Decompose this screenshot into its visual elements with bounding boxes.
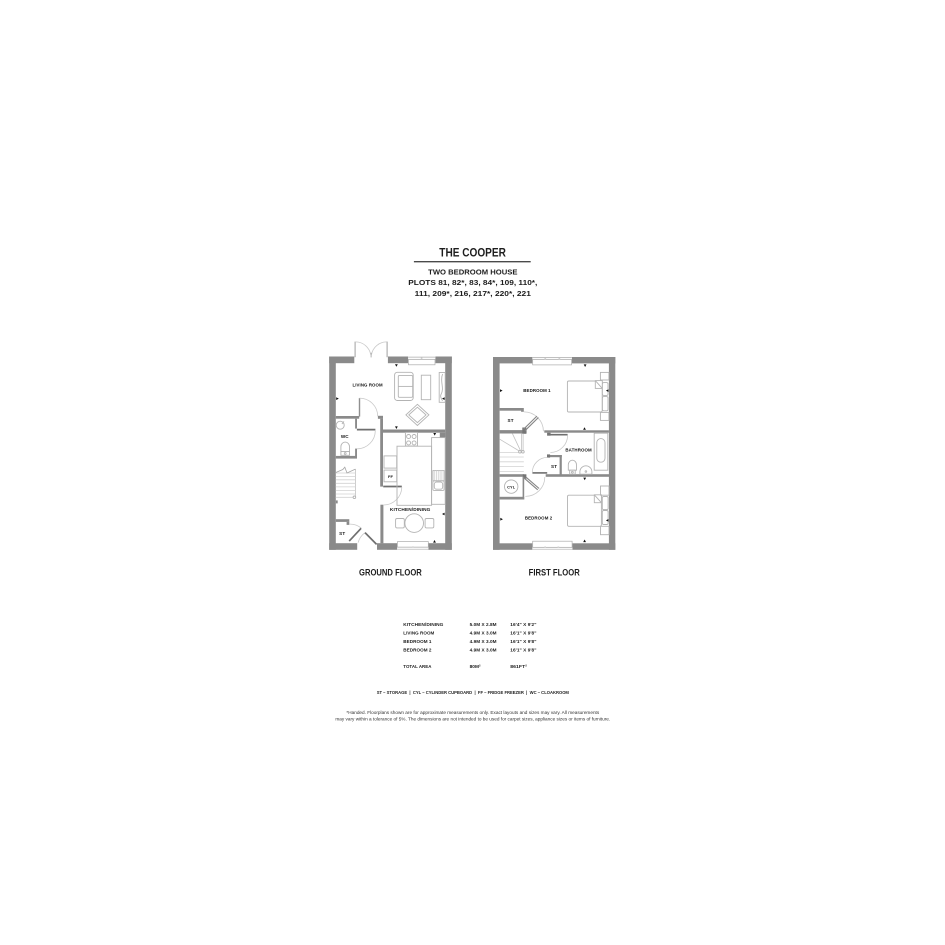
- svg-text:THE COOPER: THE COOPER: [439, 246, 506, 260]
- svg-text:BEDROOM 1: BEDROOM 1: [523, 388, 551, 393]
- svg-text:LIVING ROOM: LIVING ROOM: [353, 382, 383, 387]
- svg-text:16'1" X 9'8": 16'1" X 9'8": [510, 648, 536, 654]
- svg-text:CYL: CYL: [507, 484, 516, 489]
- svg-text:KITCHEN/DINING: KITCHEN/DINING: [390, 507, 431, 512]
- svg-text:111, 209*, 216, 217*, 220*, 22: 111, 209*, 216, 217*, 220*, 221: [415, 289, 532, 298]
- svg-text:*Handed. Floorplans shown are: *Handed. Floorplans shown are for approx…: [346, 710, 599, 715]
- svg-text:4.9M X 3.0M: 4.9M X 3.0M: [470, 648, 497, 654]
- svg-text:KITCHEN/DINING: KITCHEN/DINING: [403, 622, 443, 628]
- svg-text:may vary within a tolerance of: may vary within a tolerance of 5%. The d…: [335, 716, 610, 721]
- svg-text:4.9M X 3.0M: 4.9M X 3.0M: [470, 639, 497, 645]
- svg-text:LIVING ROOM: LIVING ROOM: [403, 631, 434, 637]
- svg-text:GROUND FLOOR: GROUND FLOOR: [359, 567, 422, 578]
- svg-text:BEDROOM 2: BEDROOM 2: [403, 648, 431, 654]
- svg-text:ST: ST: [508, 418, 514, 423]
- svg-text:4.9M X 3.0M: 4.9M X 3.0M: [470, 631, 497, 637]
- svg-text:BATHROOM: BATHROOM: [565, 448, 591, 453]
- svg-text:16'4" X 9'2": 16'4" X 9'2": [510, 622, 536, 628]
- svg-text:BEDROOM 1: BEDROOM 1: [403, 639, 431, 645]
- svg-text:FF: FF: [388, 474, 394, 479]
- svg-text:5.0M X 2.8M: 5.0M X 2.8M: [470, 622, 497, 628]
- svg-text:BEDROOM 2: BEDROOM 2: [525, 515, 553, 520]
- svg-text:ST: ST: [339, 531, 345, 536]
- svg-text:16'1" X 9'8": 16'1" X 9'8": [510, 631, 536, 637]
- svg-text:TWO BEDROOM HOUSE: TWO BEDROOM HOUSE: [428, 267, 517, 276]
- svg-text:WC: WC: [341, 434, 349, 439]
- svg-text:ST: ST: [551, 464, 557, 469]
- svg-text:FIRST FLOOR: FIRST FLOOR: [529, 567, 580, 578]
- svg-text:ST – STORAGE | CYL – CYLINDE: ST – STORAGE | CYL – CYLINDER CUPBOARD |…: [377, 690, 569, 696]
- svg-text:16'1" X 9'8": 16'1" X 9'8": [510, 639, 536, 645]
- svg-text:TOTAL AREA: TOTAL AREA: [403, 664, 432, 670]
- svg-text:861FT²: 861FT²: [510, 664, 527, 670]
- svg-text:PLOTS 81, 82*, 83, 84*, 109, 1: PLOTS 81, 82*, 83, 84*, 109, 110*,: [408, 278, 537, 287]
- svg-text:80M²: 80M²: [470, 664, 481, 670]
